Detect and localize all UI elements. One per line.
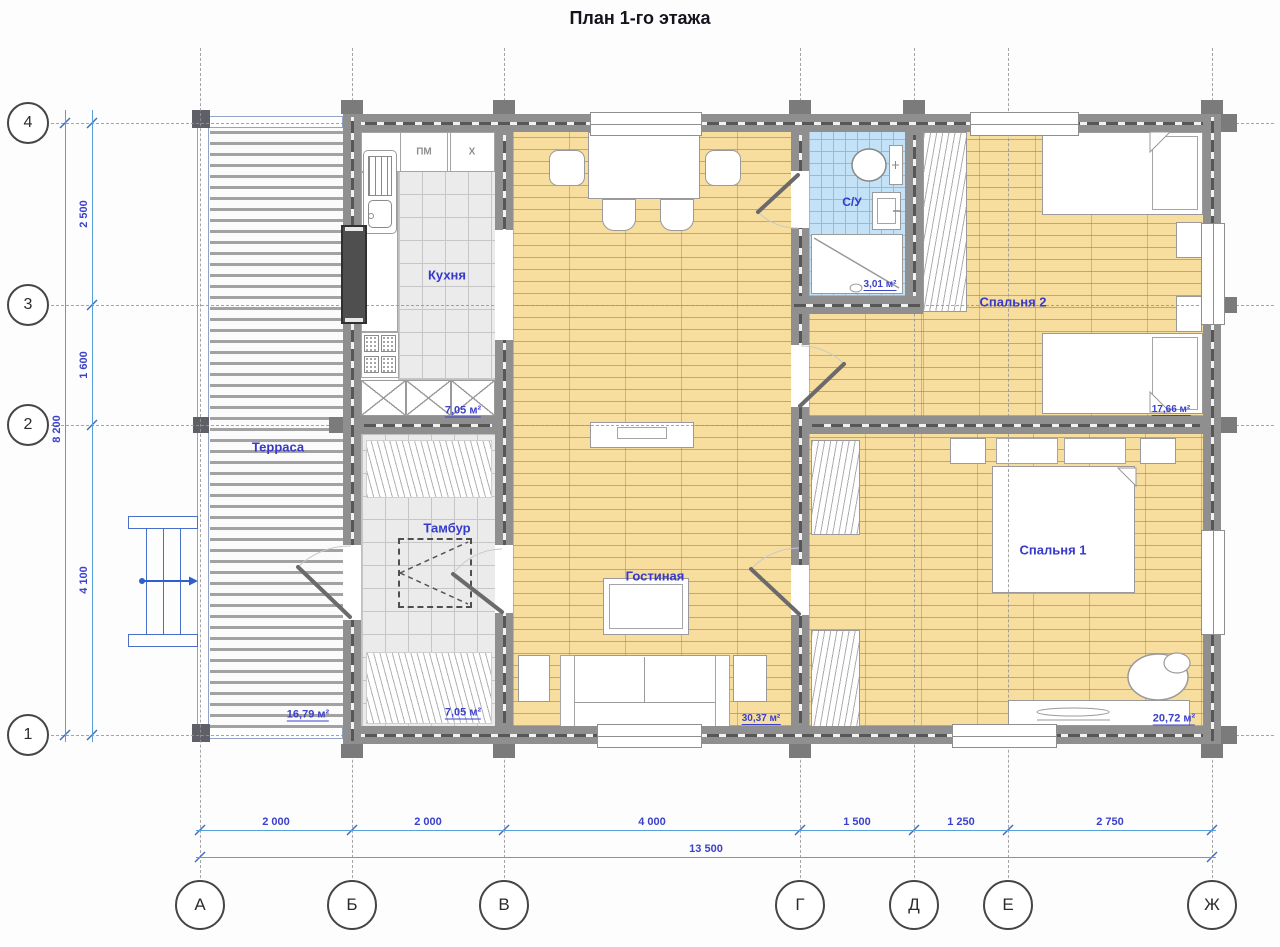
window-kitchen-left: [341, 225, 367, 324]
wall-bathroom-bottom: [791, 296, 923, 314]
stove-burner: [364, 356, 379, 373]
area-label-kitchen: 7,05 м²: [445, 405, 481, 418]
wardrobe-bedroom2: [923, 132, 967, 312]
sink-bowl: [368, 200, 392, 228]
wall-interior-v: [495, 132, 513, 726]
area-label-bedroom2: 17,66 м²: [1152, 404, 1191, 416]
nightstand: [1176, 296, 1202, 332]
axis-line-col-a: [200, 48, 201, 878]
door-opening-bathroom: [791, 171, 809, 228]
dishwasher-label: ПМ: [416, 147, 432, 158]
log-crown: [1201, 100, 1223, 114]
grid-circle-label: 2: [24, 416, 33, 434]
terrace-step-line: [146, 529, 147, 634]
wall-bedrooms-divider: [809, 416, 1203, 434]
axis-line-row-3: [46, 305, 1274, 306]
sofa-seat-divider: [644, 657, 645, 702]
dim-line-bottom-total: [196, 857, 1216, 858]
door-opening-terrace-tambour: [343, 545, 361, 620]
grid-circle-label: Г: [795, 895, 804, 915]
pillow: [1064, 438, 1126, 464]
grid-circle-label: А: [194, 895, 205, 915]
grid-circle-col-zh: Ж: [1187, 880, 1237, 930]
wall-kitchen-tambour: [361, 416, 495, 434]
wall-exterior-bottom: [343, 726, 1221, 744]
log-crown: [493, 744, 515, 758]
room-label-bedroom2: Спальня 2: [980, 295, 1047, 310]
terrace-rail-bottom: [197, 727, 343, 739]
wall-exterior-left: [343, 114, 361, 744]
terrace-step-upper: [128, 516, 198, 529]
grid-circle-col-g: Г: [775, 880, 825, 930]
area-label-bathroom: 3,01 м²: [864, 279, 897, 291]
grid-circle-col-a: А: [175, 880, 225, 930]
area-label-tambour: 7,05 м²: [445, 707, 481, 720]
nightstand: [1140, 438, 1176, 464]
terrace-post: [192, 110, 210, 128]
wall-exterior-top: [343, 114, 1221, 132]
window-bedroom1-right: [1201, 530, 1225, 635]
side-table: [733, 655, 767, 702]
dining-chair: [549, 150, 585, 186]
window-dining-top: [590, 112, 702, 136]
axis-line-col-e: [1008, 48, 1009, 878]
grid-circle-label: Д: [908, 895, 920, 915]
window-bedroom1-bottom: [952, 724, 1057, 748]
window-living-bottom: [597, 724, 702, 748]
wall-bathroom-right: [905, 132, 923, 314]
door-opening-bedroom1: [791, 565, 809, 615]
bed-double: [992, 466, 1135, 593]
room-label-bathroom: С/У: [842, 195, 861, 209]
side-table: [518, 655, 550, 702]
stair-arrow-start: [139, 578, 145, 584]
dim-label: 2 750: [1096, 816, 1124, 828]
stove-burner: [381, 356, 396, 373]
dim-label-total-bottom: 13 500: [689, 843, 723, 855]
dining-table: [588, 132, 700, 199]
future-stair-outline: [398, 538, 472, 608]
grid-circle-row-1: 1: [7, 714, 49, 756]
window-bedroom2-right: [1201, 223, 1225, 325]
grid-circle-label: В: [498, 895, 509, 915]
opening-kitchen-dining: [495, 230, 513, 340]
sofa-armrest: [715, 655, 730, 727]
grid-circle-col-v: В: [479, 880, 529, 930]
dim-label: 2 500: [78, 200, 90, 228]
window-bedroom2-top: [970, 112, 1079, 136]
dim-line-left-segments: [92, 110, 93, 742]
dim-line-left-total: [65, 110, 66, 742]
dim-line-bottom-segments: [196, 830, 1216, 831]
room-label-terrace: Терраса: [252, 440, 304, 455]
stove-burner: [364, 335, 379, 352]
wardrobe-bedroom1: [811, 630, 860, 728]
log-crown: [789, 744, 811, 758]
washbasin-bowl: [877, 198, 896, 224]
room-label-kitchen: Кухня: [428, 268, 466, 283]
room-label-tambour: Тамбур: [423, 521, 470, 536]
grid-circle-row-4: 4: [7, 102, 49, 144]
grid-circle-label: Б: [346, 895, 357, 915]
dining-chair: [705, 150, 741, 186]
tv-set: [617, 427, 667, 439]
grid-circle-label: Ж: [1204, 895, 1220, 915]
dim-label: 1 600: [78, 351, 90, 379]
grid-circle-label: 1: [24, 726, 33, 744]
tambour-closet-top: [366, 440, 492, 498]
pillow: [1152, 136, 1198, 210]
wardrobe-bedroom1: [811, 440, 860, 535]
room-label-bedroom1: Спальня 1: [1020, 543, 1087, 558]
dim-label: 4 000: [638, 816, 666, 828]
dim-label-total-left: 8 200: [51, 415, 63, 443]
grid-circle-label: Е: [1002, 895, 1013, 915]
door-opening-tambour-living: [495, 545, 513, 613]
grid-circle-row-2: 2: [7, 404, 49, 446]
area-label-terrace: 16,79 м²: [287, 709, 329, 722]
dim-label: 2 000: [262, 816, 290, 828]
fridge-label: Х: [469, 147, 476, 158]
terrace-post: [192, 724, 210, 742]
grid-circle-col-e: Е: [983, 880, 1033, 930]
pillow: [996, 438, 1058, 464]
log-crown: [341, 100, 363, 114]
log-crown: [1201, 744, 1223, 758]
dim-label: 2 000: [414, 816, 442, 828]
log-crown: [341, 744, 363, 758]
grid-circle-col-d: Д: [889, 880, 939, 930]
wall-exterior-right: [1203, 114, 1221, 744]
door-opening-bedroom2: [791, 345, 809, 407]
terrace-rail-top: [197, 116, 343, 128]
kitchen-base-cabinet: [361, 380, 406, 416]
area-label-living: 30,37 м²: [742, 713, 781, 725]
coffee-table-inner: [609, 584, 683, 629]
nightstand: [950, 438, 986, 464]
log-crown: [789, 100, 811, 114]
sofa-back-line: [575, 702, 715, 703]
pillow: [1152, 337, 1198, 410]
log-crown: [1221, 726, 1237, 744]
dining-chair: [602, 199, 636, 231]
sofa-armrest: [560, 655, 575, 727]
log-crown: [903, 100, 925, 114]
terrace-step-line: [180, 529, 181, 634]
sink-drainboard: [368, 156, 392, 196]
dim-label: 1 500: [843, 816, 871, 828]
dining-chair: [660, 199, 694, 231]
sofa: [560, 655, 730, 727]
toilet-tank: [889, 145, 903, 185]
area-label-bedroom1: 20,72 м²: [1153, 713, 1195, 726]
terrace-step-lower: [128, 634, 198, 647]
dim-label: 1 250: [947, 816, 975, 828]
terrace-step-line: [163, 529, 164, 634]
grid-circle-col-b: Б: [327, 880, 377, 930]
log-crown: [493, 100, 515, 114]
dim-label: 4 100: [78, 566, 90, 594]
floor-plan-canvas: План 1-го этажа ПМ Х: [0, 0, 1280, 947]
log-crown: [1221, 114, 1237, 132]
room-label-living: Гостиная: [626, 569, 685, 584]
grid-circle-label: 4: [24, 114, 33, 132]
log-crown: [1221, 417, 1237, 433]
log-crown: [329, 417, 343, 433]
stove-burner: [381, 335, 396, 352]
floor-bedroom2-entry-wood: [809, 314, 923, 416]
page-title: План 1-го этажа: [569, 8, 710, 29]
grid-circle-row-3: 3: [7, 284, 49, 326]
nightstand: [1176, 222, 1202, 258]
grid-circle-label: 3: [24, 296, 33, 314]
